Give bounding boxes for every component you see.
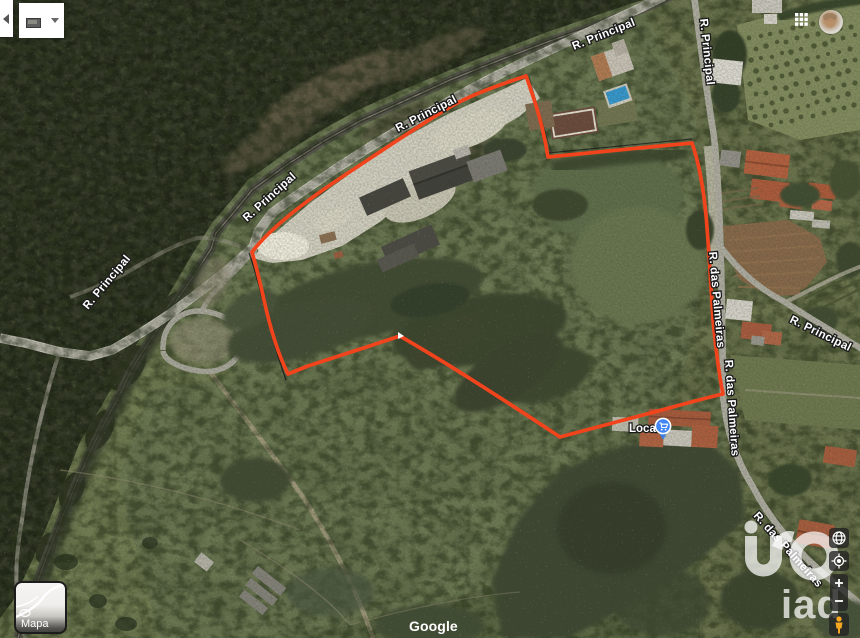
svg-text:Mapa: Mapa <box>21 618 49 630</box>
svg-text:Local: Local <box>629 423 659 435</box>
svg-text:Google: Google <box>409 618 458 634</box>
